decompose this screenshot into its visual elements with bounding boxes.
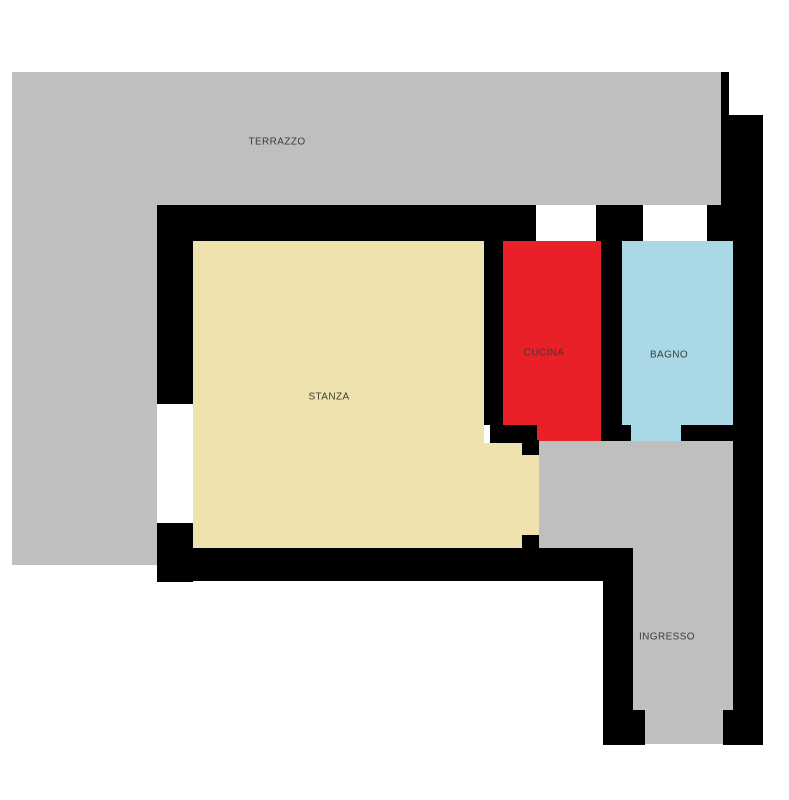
cucina-room (503, 241, 601, 425)
bagno-label: BAGNO (650, 350, 688, 361)
wall-ingresso-left (603, 548, 633, 745)
ingresso-label: INGRESSO (639, 632, 695, 643)
wall-right-main (733, 241, 763, 710)
floor-plan: TERRAZZO STANZA CUCINA BAGNO INGRESSO (0, 0, 789, 800)
wall-entry-step-left (633, 710, 645, 745)
wall-stanza-cucina-divider (484, 241, 503, 425)
ingresso-corridor (633, 548, 733, 710)
ingresso-entry-opening (645, 710, 723, 744)
wall-terrace-right-thin (721, 72, 729, 115)
wall-bottom-band (157, 548, 633, 581)
wall-stanza-door-stub-bottom (522, 535, 539, 549)
stanza-label: STANZA (308, 392, 349, 403)
terrazzo-label: TERRAZZO (248, 137, 305, 148)
bagno-door-opening (631, 425, 681, 441)
terrazzo-area-top (12, 72, 721, 205)
wall-bagno-door-stub-right (681, 425, 733, 441)
stanza-room-extension (484, 443, 539, 549)
wall-stanza-door-stub-top (522, 440, 539, 455)
ingresso-hall-area (539, 441, 733, 548)
wall-cucina-bagno-divider (601, 241, 622, 425)
wall-top-band-right (707, 205, 721, 241)
bagno-room (622, 241, 733, 425)
wall-right-upper-block (721, 115, 763, 241)
wall-top-band-middle (596, 205, 643, 241)
cucina-door-opening (537, 425, 601, 441)
wall-left-upper (157, 205, 193, 404)
cucina-label: CUCINA (524, 348, 565, 359)
wall-bagno-door-stub-left (601, 425, 631, 441)
terrazzo-area-left (12, 205, 157, 565)
wall-top-band-left (157, 205, 536, 241)
wall-entry-step-right (723, 710, 763, 745)
